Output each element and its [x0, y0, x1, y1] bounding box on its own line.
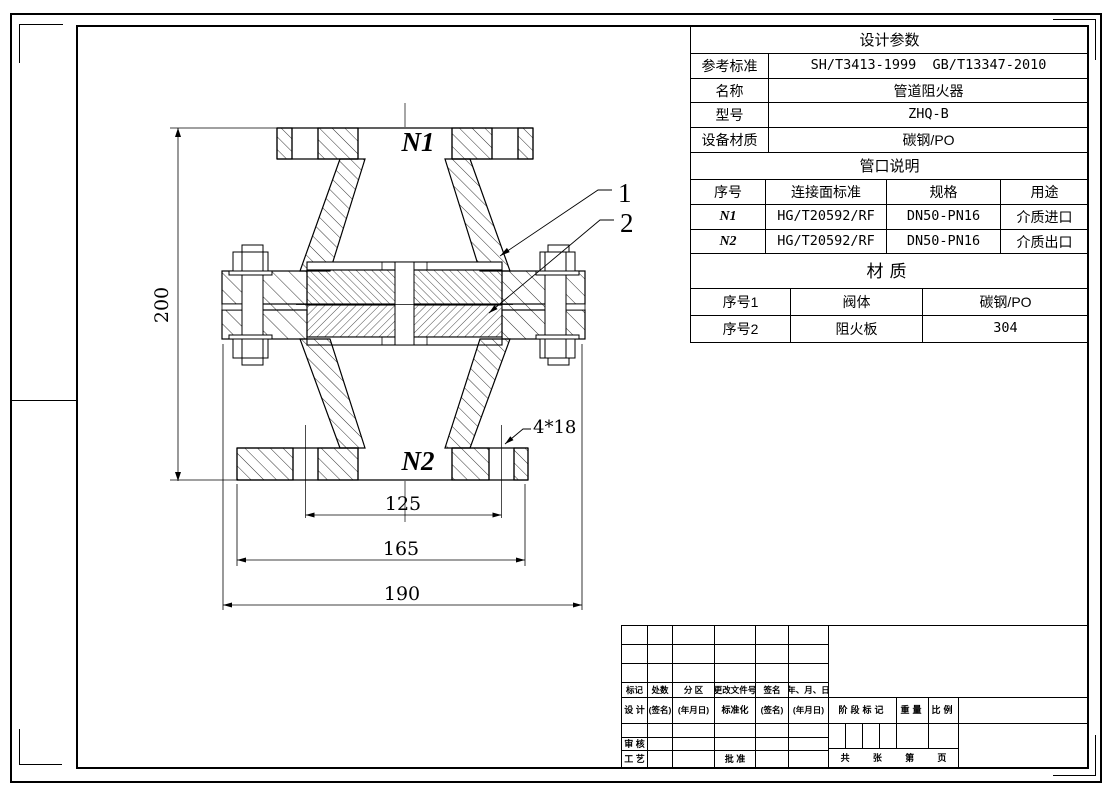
- empty-cell: [755, 663, 789, 683]
- tb-sheet-total: 共: [841, 754, 850, 763]
- tb-sheet-page: 页: [937, 754, 946, 763]
- dim-height-200: 200: [151, 287, 173, 323]
- empty-cell: [714, 625, 756, 645]
- empty-cell: [621, 723, 648, 738]
- tb-design-sign: (签名): [647, 697, 673, 724]
- empty-cell: [788, 737, 829, 751]
- tb-header-date: 年、月、日: [788, 682, 829, 698]
- nozzle-cell: HG/T20592/RF: [765, 204, 887, 230]
- part-label-1: 1: [618, 178, 632, 208]
- part-label-2: 2: [620, 208, 634, 238]
- empty-cell: [714, 723, 756, 738]
- empty-cell: [647, 750, 673, 769]
- centering-mark-top-left: [19, 24, 63, 63]
- nozzle-cell: N1: [690, 204, 766, 230]
- parameter-table: 设计参数 参考标准 SH/T3413-1999 GB/T13347-2010 名…: [690, 26, 1089, 343]
- nozzle-cell: DN50-PN16: [886, 204, 1001, 230]
- empty-cell: [621, 625, 648, 645]
- empty-cell: [755, 723, 789, 738]
- empty-cell: [755, 625, 789, 645]
- dim-bolt-circle-125: 125: [385, 493, 421, 515]
- material-cell: 阻火板: [790, 315, 923, 343]
- title-block: 标记 处数 分 区 更改文件号 签名 年、月、日 设 计 (签名) (年月日) …: [621, 625, 1089, 769]
- tb-audit: 审 核: [621, 737, 648, 751]
- tb-header-mark: 标记: [621, 682, 648, 698]
- material-table-title: 材质: [690, 253, 1089, 289]
- empty-cell: [647, 625, 673, 645]
- nozzle-header: 用途: [1000, 179, 1089, 205]
- empty-cell: [714, 644, 756, 664]
- empty-cell: [755, 737, 789, 751]
- param-label: 参考标准: [690, 53, 769, 79]
- empty-cell: [647, 737, 673, 751]
- empty-cell: [621, 644, 648, 664]
- tb-drawing-name-area: [828, 625, 1089, 698]
- nozzle-table-title: 管口说明: [690, 152, 1089, 180]
- empty-cell: [845, 723, 863, 749]
- empty-cell: [928, 723, 959, 749]
- tb-approve: 批 准: [714, 750, 756, 769]
- tb-design: 设 计: [621, 697, 648, 724]
- empty-cell: [828, 723, 846, 749]
- dimensions: [170, 128, 582, 610]
- tb-sheet-no: 第: [905, 754, 914, 763]
- nozzle-label-n1: N1: [401, 127, 435, 157]
- empty-cell: [647, 644, 673, 664]
- flame-arrester-section-view: N1 N2 1 2 4*18 200 125 165 190: [60, 85, 680, 645]
- material-cell: 序号1: [690, 288, 791, 316]
- tb-sheet-row: 共 张 第 页: [828, 748, 959, 769]
- empty-cell: [647, 663, 673, 683]
- tb-std-date: (年月日): [788, 697, 829, 724]
- tb-std-sign: (签名): [755, 697, 789, 724]
- bolt-holes-callout: 4*18: [533, 417, 576, 438]
- tb-header-zone: 分 区: [672, 682, 715, 698]
- empty-cell: [896, 723, 929, 749]
- tb-design-date: (年月日): [672, 697, 715, 724]
- param-label: 名称: [690, 78, 769, 103]
- empty-cell: [879, 723, 897, 749]
- tb-header-signature: 签名: [755, 682, 789, 698]
- tb-stage-mark: 阶段标记: [828, 697, 897, 724]
- dim-housing-od-190: 190: [384, 583, 420, 605]
- tb-drawing-no-area: [958, 697, 1089, 724]
- nozzle-cell: N2: [690, 229, 766, 254]
- empty-cell: [672, 723, 715, 738]
- tb-weight: 重量: [896, 697, 929, 724]
- empty-cell: [672, 644, 715, 664]
- param-value: ZHQ-B: [768, 102, 1089, 128]
- nozzle-header: 序号: [690, 179, 766, 205]
- dim-flange-od-165: 165: [383, 538, 419, 560]
- empty-cell: [672, 750, 715, 769]
- empty-cell: [621, 663, 648, 683]
- dimension-arrows: [175, 128, 582, 608]
- empty-cell: [672, 737, 715, 751]
- param-value: SH/T3413-1999 GB/T13347-2010: [768, 53, 1089, 79]
- empty-cell: [958, 723, 1089, 769]
- param-label: 设备材质: [690, 127, 769, 153]
- tb-scale: 比例: [928, 697, 959, 724]
- material-cell: 序号2: [690, 315, 791, 343]
- material-cell: 阀体: [790, 288, 923, 316]
- empty-cell: [672, 663, 715, 683]
- empty-cell: [788, 723, 829, 738]
- empty-cell: [788, 750, 829, 769]
- tb-craft: 工 艺: [621, 750, 648, 769]
- tb-header-count: 处数: [647, 682, 673, 698]
- drawing-sheet: N1 N2 1 2 4*18 200 125 165 190 设计参数 参考标准…: [0, 0, 1113, 795]
- arrester-element: [296, 262, 513, 345]
- empty-cell: [714, 663, 756, 683]
- nozzle-header: 规格: [886, 179, 1001, 205]
- empty-cell: [647, 723, 673, 738]
- param-table-title: 设计参数: [690, 26, 1089, 54]
- nozzle-cell: 介质进口: [1000, 204, 1089, 230]
- empty-cell: [714, 737, 756, 751]
- nozzle-cell: DN50-PN16: [886, 229, 1001, 254]
- bottom-flange: [237, 448, 528, 480]
- nozzle-cell: 介质出口: [1000, 229, 1089, 254]
- tb-sheet-zhang: 张: [873, 754, 882, 763]
- material-cell: 碳钢/PO: [922, 288, 1089, 316]
- empty-cell: [672, 625, 715, 645]
- param-label: 型号: [690, 102, 769, 128]
- tb-standardization: 标准化: [714, 697, 756, 724]
- tb-header-change-doc: 更改文件号: [714, 682, 756, 698]
- empty-cell: [788, 644, 829, 664]
- upper-cone: [300, 159, 510, 271]
- param-value: 碳钢/PO: [768, 127, 1089, 153]
- material-cell: 304: [922, 315, 1089, 343]
- empty-cell: [788, 625, 829, 645]
- lower-cone: [300, 339, 510, 448]
- centering-mark-bottom-left: [19, 729, 62, 765]
- empty-cell: [755, 644, 789, 664]
- empty-cell: [788, 663, 829, 683]
- empty-cell: [862, 723, 880, 749]
- nozzle-label-n2: N2: [401, 446, 435, 476]
- param-value: 管道阻火器: [768, 78, 1089, 103]
- nozzle-cell: HG/T20592/RF: [765, 229, 887, 254]
- nozzle-header: 连接面标准: [765, 179, 887, 205]
- empty-cell: [755, 750, 789, 769]
